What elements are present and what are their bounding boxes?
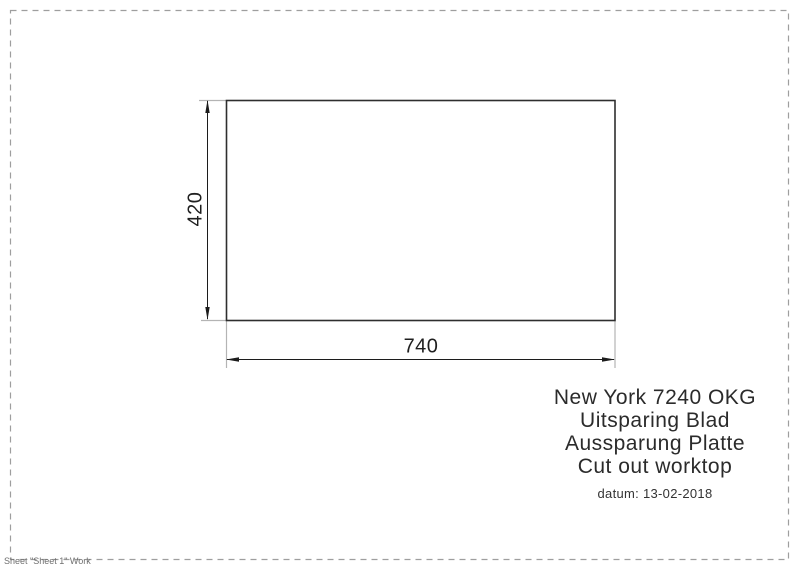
- drawing-sheet: 420 740 New York 7240 OKG Uitsparing Bla…: [0, 0, 800, 573]
- title-block: New York 7240 OKG Uitsparing Blad Ausspa…: [554, 386, 756, 502]
- description-en: Cut out worktop: [554, 455, 756, 478]
- description-nl: Uitsparing Blad: [554, 409, 756, 432]
- arrow-left-icon: [226, 357, 239, 361]
- width-dimension-value: 740: [404, 336, 439, 359]
- arrow-right-icon: [602, 357, 615, 361]
- date-label: datum: 13-02-2018: [554, 486, 756, 502]
- sheet-name-label: Sheet "Sheet 1" Work: [4, 555, 91, 567]
- cutout-outline: [227, 101, 616, 321]
- model-name: New York 7240 OKG: [554, 386, 756, 409]
- arrow-up-icon: [205, 100, 209, 113]
- arrow-down-icon: [205, 307, 209, 320]
- height-dimension-value: 420: [185, 192, 208, 227]
- description-de: Aussparung Platte: [554, 432, 756, 455]
